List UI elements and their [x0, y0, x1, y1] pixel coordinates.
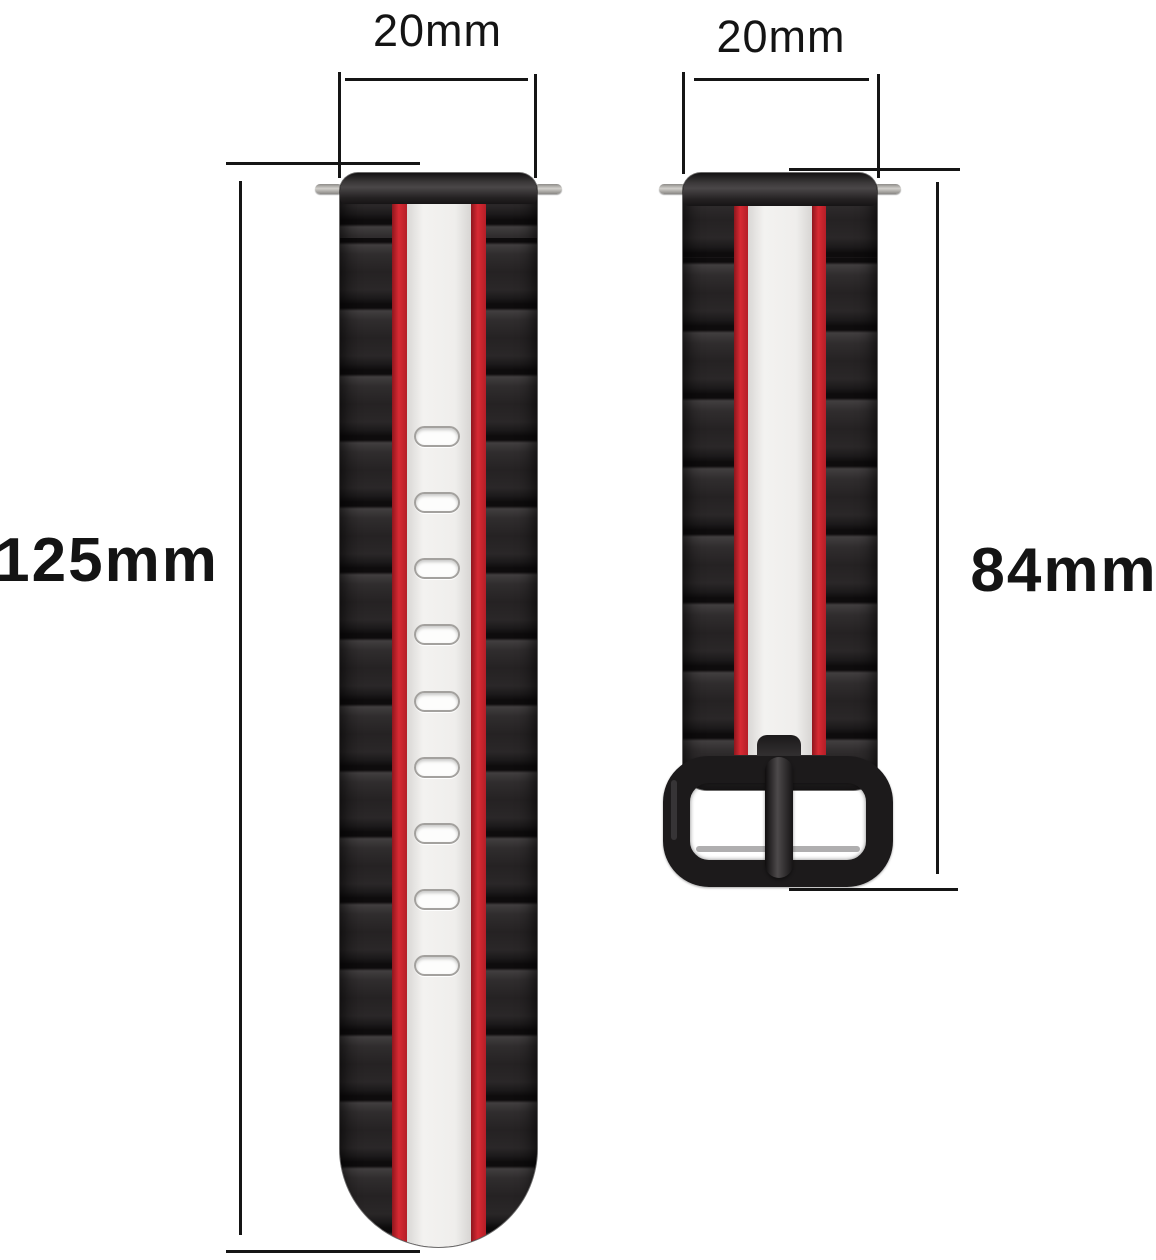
dim-tick	[877, 74, 880, 178]
white-stripe	[748, 204, 812, 755]
dim-extension-line	[226, 162, 420, 165]
short-band-length-label: 84mm	[966, 540, 1156, 602]
red-stripe	[392, 202, 407, 1247]
band-lug-end	[683, 173, 877, 206]
adjustment-hole	[414, 558, 460, 579]
adjustment-hole	[414, 889, 460, 910]
adjustment-hole	[414, 691, 460, 712]
dim-tick	[682, 72, 685, 174]
short-band-width-label: 20mm	[683, 14, 879, 59]
buckle-prong	[765, 757, 793, 878]
dim-tick	[534, 74, 537, 178]
adjustment-hole	[414, 492, 460, 513]
red-stripe	[471, 202, 486, 1247]
dim-line	[694, 78, 869, 81]
adjustment-hole	[414, 757, 460, 778]
dim-line	[936, 182, 939, 874]
white-stripe	[407, 202, 471, 1247]
long-band	[340, 173, 537, 1247]
buckle-highlight	[671, 780, 677, 840]
spring-bar-pin	[873, 184, 901, 194]
dim-extension-line	[226, 1250, 420, 1253]
dim-extension-line	[789, 888, 958, 891]
band-center-stripes	[734, 204, 826, 755]
dim-line	[239, 181, 242, 1235]
long-band-width-label: 20mm	[339, 8, 536, 53]
spring-bar-pin	[534, 184, 562, 194]
spring-bar-pin	[315, 184, 343, 194]
band-center-stripes	[392, 202, 486, 1247]
red-stripe	[812, 204, 826, 755]
adjustment-hole	[414, 426, 460, 447]
adjustment-hole	[414, 624, 460, 645]
red-stripe	[734, 204, 748, 755]
adjustment-hole	[414, 955, 460, 976]
dim-extension-line	[789, 168, 960, 171]
adjustment-hole	[414, 823, 460, 844]
dim-line	[345, 78, 528, 81]
long-band-length-label: 125mm	[0, 530, 220, 592]
product-dimension-image: 20mm 20mm 125mm 84mm	[0, 0, 1156, 1260]
short-band	[683, 173, 877, 790]
band-lug-end	[340, 173, 537, 204]
